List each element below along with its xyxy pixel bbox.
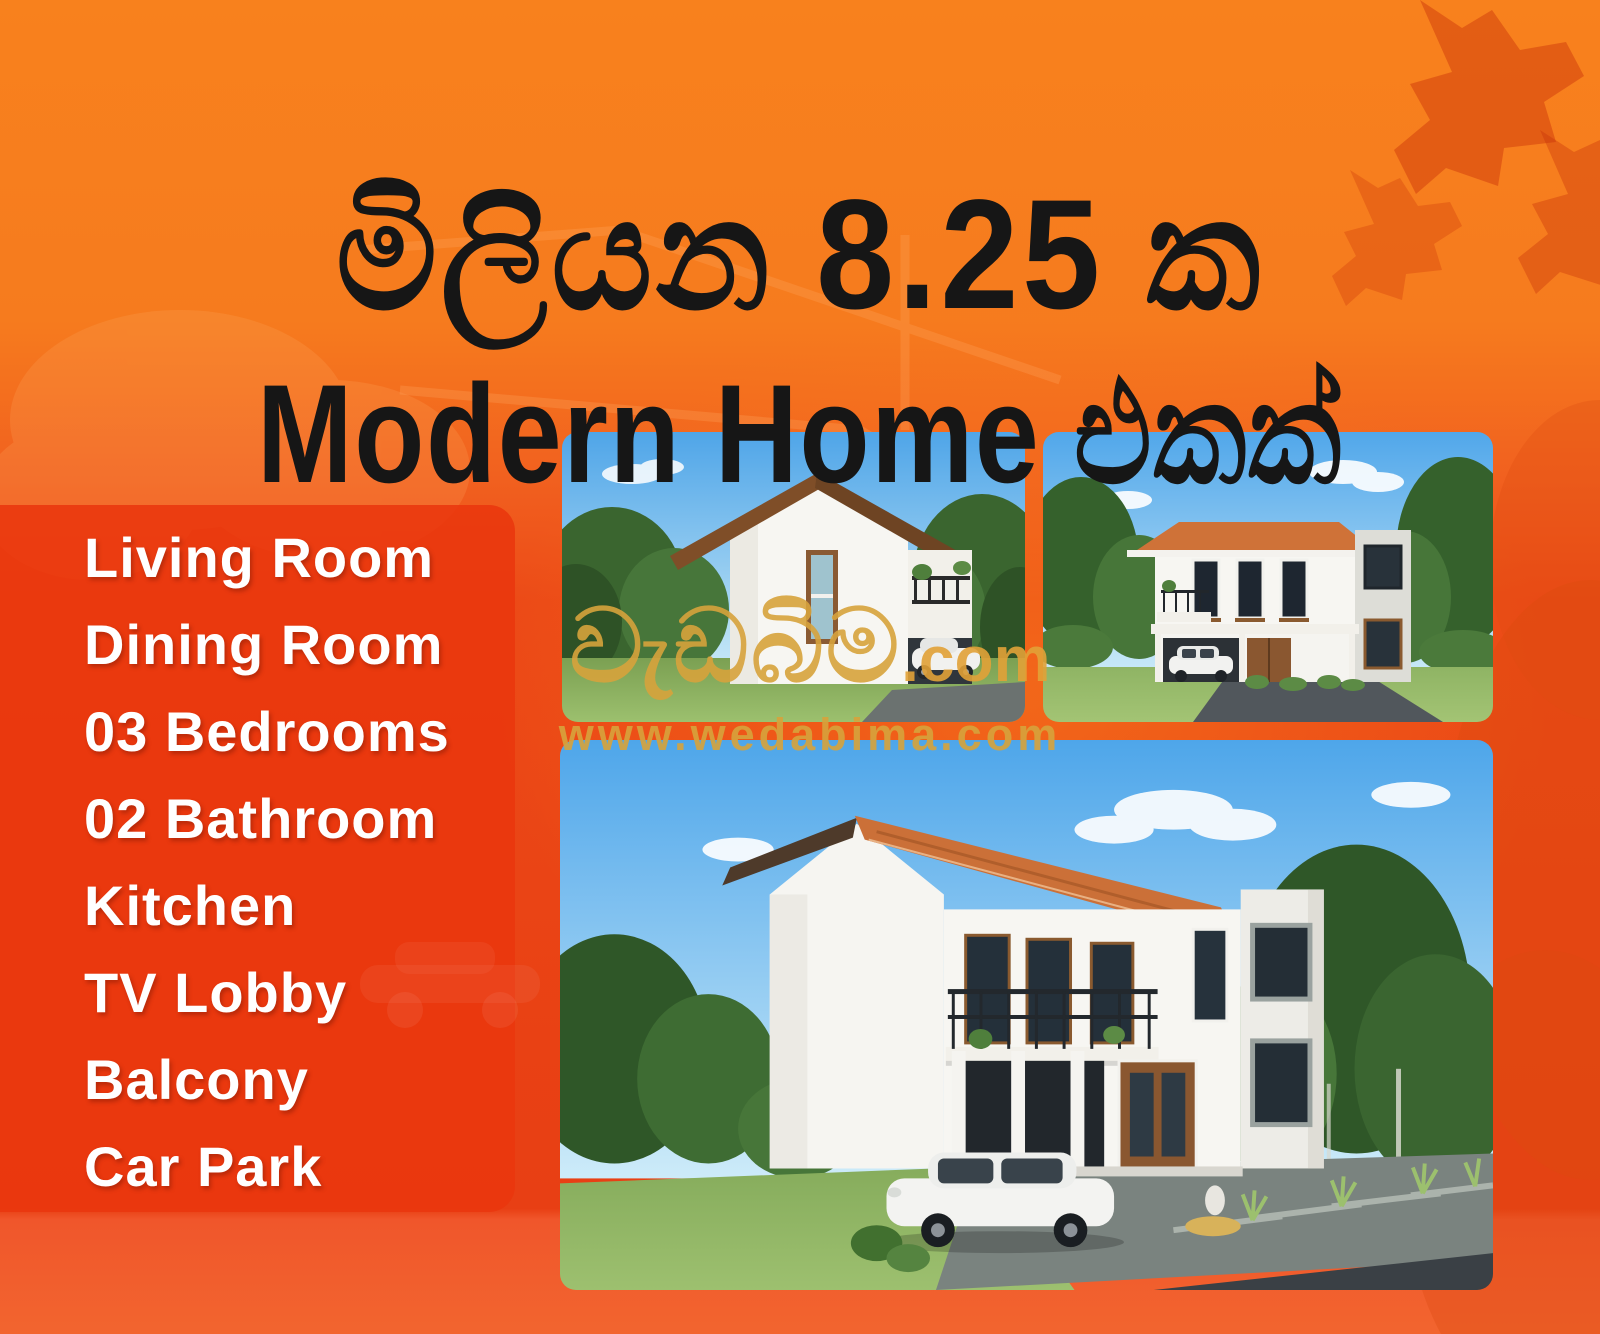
feature-item-balcony: Balcony	[84, 1036, 450, 1123]
house	[1127, 522, 1411, 691]
photo-house-perspective-view	[560, 740, 1493, 1290]
feature-item-car-park: Car Park	[84, 1123, 450, 1210]
feature-item-living-room: Living Room	[84, 514, 450, 601]
feature-item-dining-room: Dining Room	[84, 601, 450, 688]
feature-item-bathroom: 02 Bathroom	[84, 775, 450, 862]
features-list: Living Room Dining Room 03 Bedrooms 02 B…	[84, 514, 450, 1210]
door	[1119, 1061, 1196, 1169]
main-title: මිලියන 8.25 ක	[80, 177, 1520, 333]
vase	[1205, 1185, 1225, 1215]
feature-item-bedrooms: 03 Bedrooms	[84, 688, 450, 775]
window	[806, 550, 838, 644]
subtitle: Modern Home එකක්	[144, 364, 1456, 504]
feature-item-kitchen: Kitchen	[84, 862, 450, 949]
poster-background: මිලියන 8.25 ක Modern Home එකක් Living Ro…	[0, 0, 1600, 1334]
feature-item-tv-lobby: TV Lobby	[84, 949, 450, 1036]
